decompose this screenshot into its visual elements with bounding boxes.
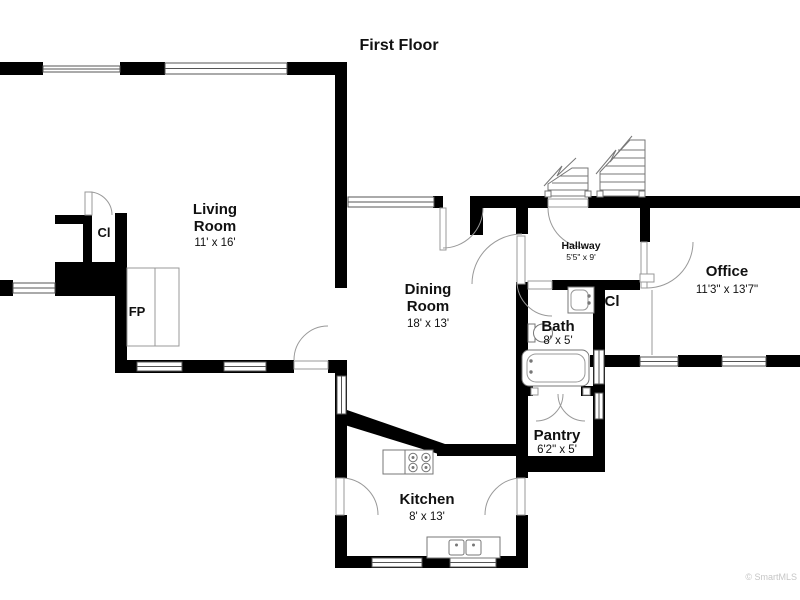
door-jamb xyxy=(583,388,590,395)
room-label-hallway: Hallway xyxy=(561,240,600,252)
room-label-kitchen: Kitchen xyxy=(399,491,454,508)
room-dims-kitchen: 8' x 13' xyxy=(409,511,445,523)
window xyxy=(640,357,678,366)
room-label-dining-line2: Room xyxy=(407,298,450,315)
closet-label-living: Cl xyxy=(98,225,111,240)
wall-office-bottom xyxy=(678,355,722,367)
wall-closet-left xyxy=(83,215,92,265)
window xyxy=(372,558,422,567)
wall-stub xyxy=(55,215,83,224)
wall-kitchen-top xyxy=(437,444,516,456)
wall-hallway-left xyxy=(516,196,528,234)
door-leaf xyxy=(85,192,92,215)
bathtub xyxy=(522,350,589,386)
room-label-living-line2: Room xyxy=(194,218,237,235)
window xyxy=(348,197,434,207)
window xyxy=(450,558,496,567)
newel-post xyxy=(639,191,645,197)
room-label-pantry: Pantry xyxy=(534,427,581,444)
wall-kitchen-right xyxy=(516,444,528,478)
wall xyxy=(516,386,533,396)
window xyxy=(43,66,120,72)
wall-living-dining xyxy=(335,62,347,288)
door-leaf xyxy=(517,236,525,284)
wall xyxy=(0,62,43,75)
room-dims-office: 11'3" x 13'7" xyxy=(696,284,758,296)
newel-post xyxy=(545,191,551,197)
newel-post xyxy=(585,191,591,197)
window xyxy=(13,283,55,293)
floor-plan-page: First Floor Living Room 11' x 16' Dining… xyxy=(0,0,800,600)
room-dims-living: 11' x 16' xyxy=(194,237,235,249)
door-leaf xyxy=(517,478,525,515)
wall-office-left xyxy=(640,208,650,242)
window xyxy=(224,362,266,371)
door-leaf xyxy=(440,208,446,250)
room-dims-pantry: 6'2" x 5' xyxy=(537,444,577,456)
door-leaf xyxy=(336,478,344,515)
newel-post xyxy=(597,191,603,197)
window xyxy=(595,393,603,419)
room-label-office: Office xyxy=(706,263,749,280)
floor-plan: First Floor Living Room 11' x 16' Dining… xyxy=(0,0,800,600)
door-leaf xyxy=(294,361,328,369)
wall xyxy=(0,280,13,296)
door-leaf xyxy=(548,199,588,207)
wall xyxy=(120,62,165,75)
bath-sink xyxy=(568,287,594,313)
chimney-mass xyxy=(55,262,127,296)
fireplace-label: FP xyxy=(129,304,146,319)
wall-pantry-bottom xyxy=(516,456,605,472)
room-dims-dining: 18' x 13' xyxy=(407,318,449,330)
door-leaf xyxy=(528,281,552,289)
kitchen-sink xyxy=(427,537,500,558)
room-dims-hallway: 5'5" x 9' xyxy=(566,252,596,262)
door-jamb xyxy=(531,388,538,395)
window xyxy=(137,362,182,371)
wall-top-right xyxy=(588,196,800,208)
wall-notch xyxy=(640,274,654,282)
window xyxy=(722,357,766,366)
window xyxy=(165,63,287,74)
wall xyxy=(483,196,516,208)
room-dims-bath: 8' x 5' xyxy=(543,335,572,347)
window xyxy=(337,376,346,414)
closet-label-hall: Cl xyxy=(605,293,620,310)
window xyxy=(594,350,604,384)
watermark: © SmartMLS xyxy=(745,572,797,582)
stove xyxy=(383,450,433,474)
plan-title: First Floor xyxy=(359,37,438,54)
wall xyxy=(328,360,347,373)
room-label-bath: Bath xyxy=(541,318,574,335)
room-label-dining-line1: Dining xyxy=(405,281,452,298)
room-label-living-line1: Living xyxy=(193,201,237,218)
wall-office-bottom xyxy=(766,355,800,367)
